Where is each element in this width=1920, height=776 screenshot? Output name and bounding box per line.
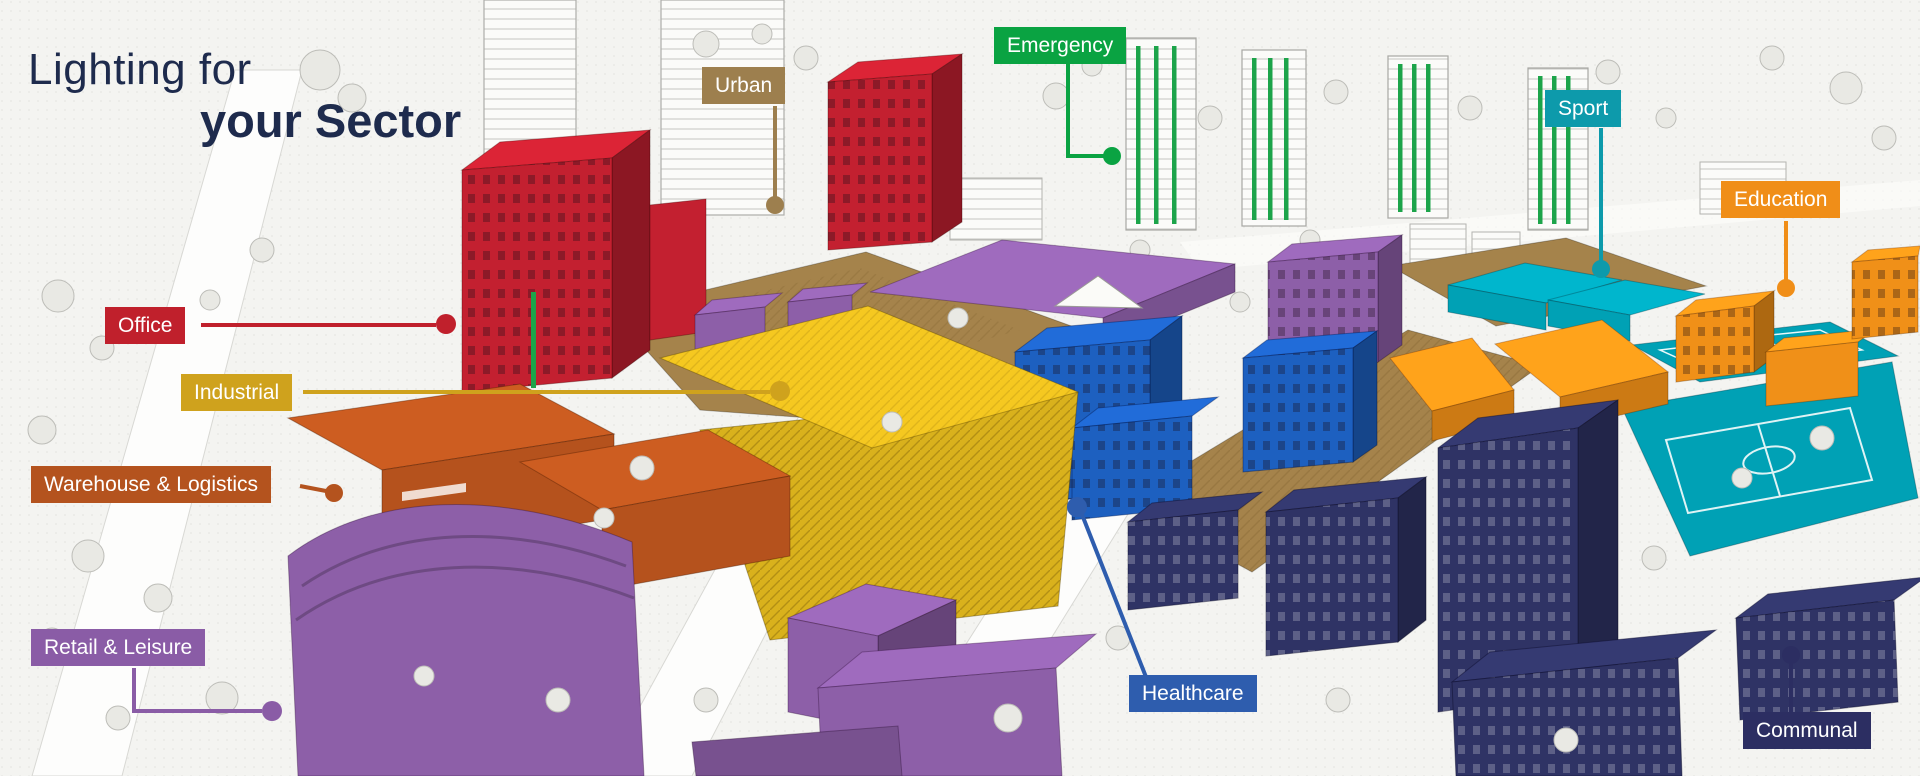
tree: [1198, 106, 1222, 130]
tree: [1458, 96, 1482, 120]
building-windows: [1852, 256, 1918, 339]
retail-marker-dot: [262, 701, 282, 721]
tree: [1324, 80, 1348, 104]
sector-label-healthcare[interactable]: Healthcare: [1129, 675, 1257, 712]
building-side: [612, 130, 650, 378]
sector-label-warehouse[interactable]: Warehouse & Logistics: [31, 466, 271, 503]
tree: [200, 290, 220, 310]
urban-marker-dot: [766, 196, 784, 214]
emergency-stripe: [1398, 64, 1403, 212]
tower: [1388, 56, 1448, 218]
building-side: [1398, 477, 1426, 642]
emergency-stripe: [1538, 76, 1543, 224]
tree: [948, 308, 968, 328]
emergency-stripe: [1172, 46, 1177, 224]
tree: [694, 688, 718, 712]
tree: [594, 508, 614, 528]
emergency-stripe: [1284, 58, 1289, 220]
hero-banner: Lighting for your Sector Office Industri…: [0, 0, 1920, 776]
tree: [250, 238, 274, 262]
tree: [1872, 126, 1896, 150]
sector-label-retail[interactable]: Retail & Leisure: [31, 629, 205, 666]
sketch-building: [950, 178, 1042, 240]
tree: [1043, 83, 1069, 109]
tree: [794, 46, 818, 70]
sport-marker-dot: [1592, 260, 1610, 278]
tree: [1830, 72, 1862, 104]
tree: [1554, 728, 1578, 752]
tree: [1326, 688, 1350, 712]
emergency-stripe: [1426, 64, 1431, 212]
tree: [1810, 426, 1834, 450]
emergency-stripe: [1412, 64, 1417, 212]
sector-label-emergency[interactable]: Emergency: [994, 27, 1126, 64]
sector-label-sport[interactable]: Sport: [1545, 90, 1621, 127]
tower: [1242, 50, 1306, 226]
emergency-stripe: [1154, 46, 1159, 224]
tree: [414, 666, 434, 686]
tree: [752, 24, 772, 44]
industrial-marker-dot: [770, 381, 790, 401]
page-title: Lighting for your Sector: [28, 46, 461, 146]
building-windows: [1128, 510, 1238, 610]
title-line-1: Lighting for: [28, 46, 461, 94]
building-windows: [1266, 498, 1398, 656]
building-front: [1766, 342, 1858, 406]
education-marker-dot: [1777, 279, 1795, 297]
sector-label-education[interactable]: Education: [1721, 181, 1840, 218]
sector-label-industrial[interactable]: Industrial: [181, 374, 292, 411]
tree: [1230, 292, 1250, 312]
building-side: [1378, 235, 1402, 362]
sector-label-office[interactable]: Office: [105, 307, 185, 344]
building-windows: [462, 158, 612, 392]
retail-hall-curved-roof: [288, 504, 644, 776]
building-side: [1353, 331, 1377, 462]
tree: [1732, 468, 1752, 488]
tree: [693, 31, 719, 57]
emergency-stripe: [1252, 58, 1257, 220]
title-line-2: your Sector: [200, 96, 461, 147]
building-side: [932, 54, 962, 242]
emergency-stripe: [1136, 46, 1141, 224]
tree: [1596, 60, 1620, 84]
tree: [546, 688, 570, 712]
emergency-stripe: [531, 292, 536, 388]
office-marker-dot: [436, 314, 456, 334]
warehouse-marker-dot: [325, 484, 343, 502]
communal-marker-dot: [1782, 646, 1800, 664]
sector-label-communal[interactable]: Communal: [1743, 712, 1871, 749]
tree: [28, 416, 56, 444]
tree: [882, 412, 902, 432]
tree: [630, 456, 654, 480]
emergency-marker-dot: [1103, 147, 1121, 165]
tree: [1760, 46, 1784, 70]
tree: [72, 540, 104, 572]
building-windows: [1736, 600, 1898, 720]
tree: [994, 704, 1022, 732]
sector-label-urban[interactable]: Urban: [702, 67, 785, 104]
emergency-stripe: [1268, 58, 1273, 220]
tree: [106, 706, 130, 730]
tree: [1656, 108, 1676, 128]
building-windows: [828, 74, 932, 250]
tree: [42, 280, 74, 312]
tree: [144, 584, 172, 612]
building-windows: [1243, 348, 1353, 472]
healthcare-marker-dot: [1067, 497, 1087, 517]
tree: [1642, 546, 1666, 570]
building-windows: [1676, 306, 1754, 382]
